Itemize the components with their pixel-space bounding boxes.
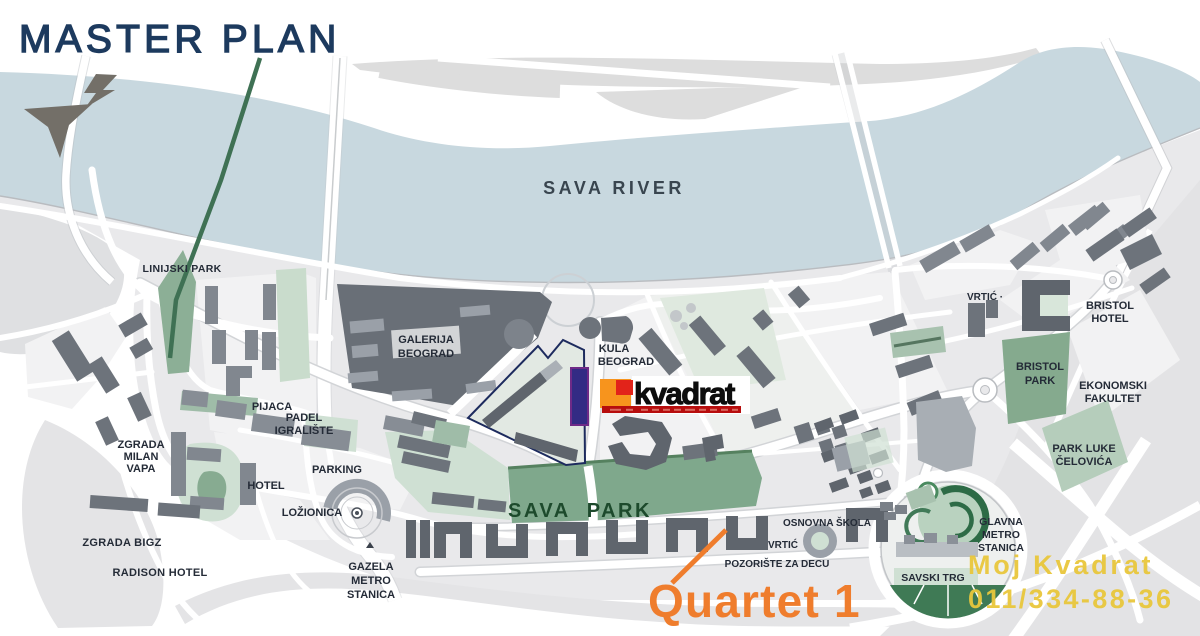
svg-text:BRISTOL: BRISTOL: [1086, 300, 1134, 312]
svg-text:Moj Kvadrat: Moj Kvadrat: [968, 550, 1153, 580]
svg-text:HOTEL: HOTEL: [1091, 313, 1129, 325]
svg-text:PADEL: PADEL: [286, 412, 323, 424]
svg-text:GAZELA: GAZELA: [348, 561, 393, 573]
svg-text:SAVSKI TRG: SAVSKI TRG: [901, 572, 964, 584]
svg-text:PARKING: PARKING: [312, 464, 362, 476]
svg-text:OSNOVNA ŠKOLA: OSNOVNA ŠKOLA: [783, 516, 871, 529]
svg-text:Quartet 1: Quartet 1: [648, 575, 861, 627]
svg-text:RADISON HOTEL: RADISON HOTEL: [113, 567, 208, 579]
svg-text:IGRALIŠTE: IGRALIŠTE: [275, 424, 334, 437]
svg-text:VRTIĆ ·: VRTIĆ ·: [967, 290, 1003, 303]
svg-text:EKONOMSKI: EKONOMSKI: [1079, 380, 1147, 392]
svg-text:STANICA: STANICA: [347, 589, 395, 601]
svg-text:GALERIJA: GALERIJA: [398, 334, 454, 346]
svg-text:LINIJSKI PARK: LINIJSKI PARK: [143, 263, 222, 275]
svg-text:METRO: METRO: [982, 529, 1020, 541]
svg-text:LOŽIONICA: LOŽIONICA: [282, 506, 343, 519]
svg-text:MILAN: MILAN: [124, 451, 159, 463]
svg-text:ČELOVIĆA: ČELOVIĆA: [1056, 455, 1113, 468]
svg-text:POZORIŠTE ZA DECU: POZORIŠTE ZA DECU: [725, 557, 830, 570]
svg-text:GLAVNA: GLAVNA: [979, 516, 1023, 528]
svg-text:BEOGRAD: BEOGRAD: [598, 356, 654, 368]
svg-text:VRTIĆ: VRTIĆ: [768, 538, 798, 551]
svg-text:011/334-88-36: 011/334-88-36: [968, 584, 1173, 614]
svg-text:METRO: METRO: [351, 575, 391, 587]
svg-text:PARK: PARK: [1025, 375, 1055, 387]
svg-text:BEOGRAD: BEOGRAD: [398, 348, 454, 360]
svg-text:MASTER PLAN: MASTER PLAN: [19, 18, 340, 61]
svg-text:BRISTOL: BRISTOL: [1016, 361, 1064, 373]
svg-text:ZGRADA BIGZ: ZGRADA BIGZ: [82, 537, 161, 549]
svg-text:KULA: KULA: [599, 343, 630, 355]
svg-text:FAKULTET: FAKULTET: [1085, 393, 1142, 405]
svg-text:kvadrat: kvadrat: [634, 376, 735, 411]
svg-text:HOTEL: HOTEL: [247, 480, 285, 492]
svg-text:SAVA RIVER: SAVA RIVER: [543, 178, 685, 198]
svg-text:SAVA PARK: SAVA PARK: [508, 500, 652, 522]
svg-text:ZGRADA: ZGRADA: [117, 439, 164, 451]
svg-text:VAPA: VAPA: [127, 463, 156, 475]
svg-text:PARK LUKE: PARK LUKE: [1052, 443, 1115, 455]
